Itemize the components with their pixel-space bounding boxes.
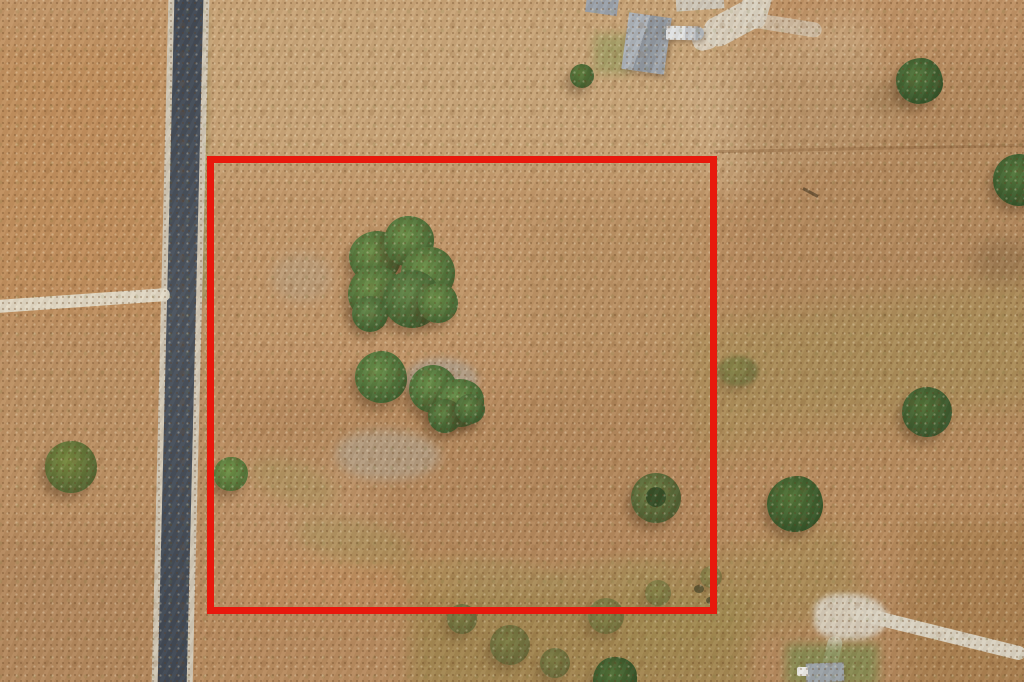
- ground-patch-left-mid: [0, 330, 170, 530]
- tree-canopy: [767, 476, 823, 532]
- tree-canopy: [45, 441, 97, 493]
- gravel-driveway-top: [751, 13, 822, 39]
- scrub-blob: [490, 625, 530, 665]
- scrub-blob: [718, 356, 758, 386]
- aerial-photo: [0, 0, 1024, 682]
- bush-small: [570, 64, 594, 88]
- property-boundary: [207, 156, 717, 614]
- tree-shadow: [972, 238, 1024, 284]
- vehicle-white: [797, 667, 808, 676]
- rv-trailer: [662, 26, 704, 41]
- tree-canopy: [896, 58, 943, 104]
- tree-canopy: [902, 387, 952, 437]
- ground-patch-topleft-orange: [0, 40, 170, 320]
- scrub-blob: [540, 648, 570, 678]
- building-roof-main: [621, 12, 672, 74]
- shed-roof: [806, 662, 845, 682]
- ground-patch-bottomright-brushy: [905, 520, 1024, 682]
